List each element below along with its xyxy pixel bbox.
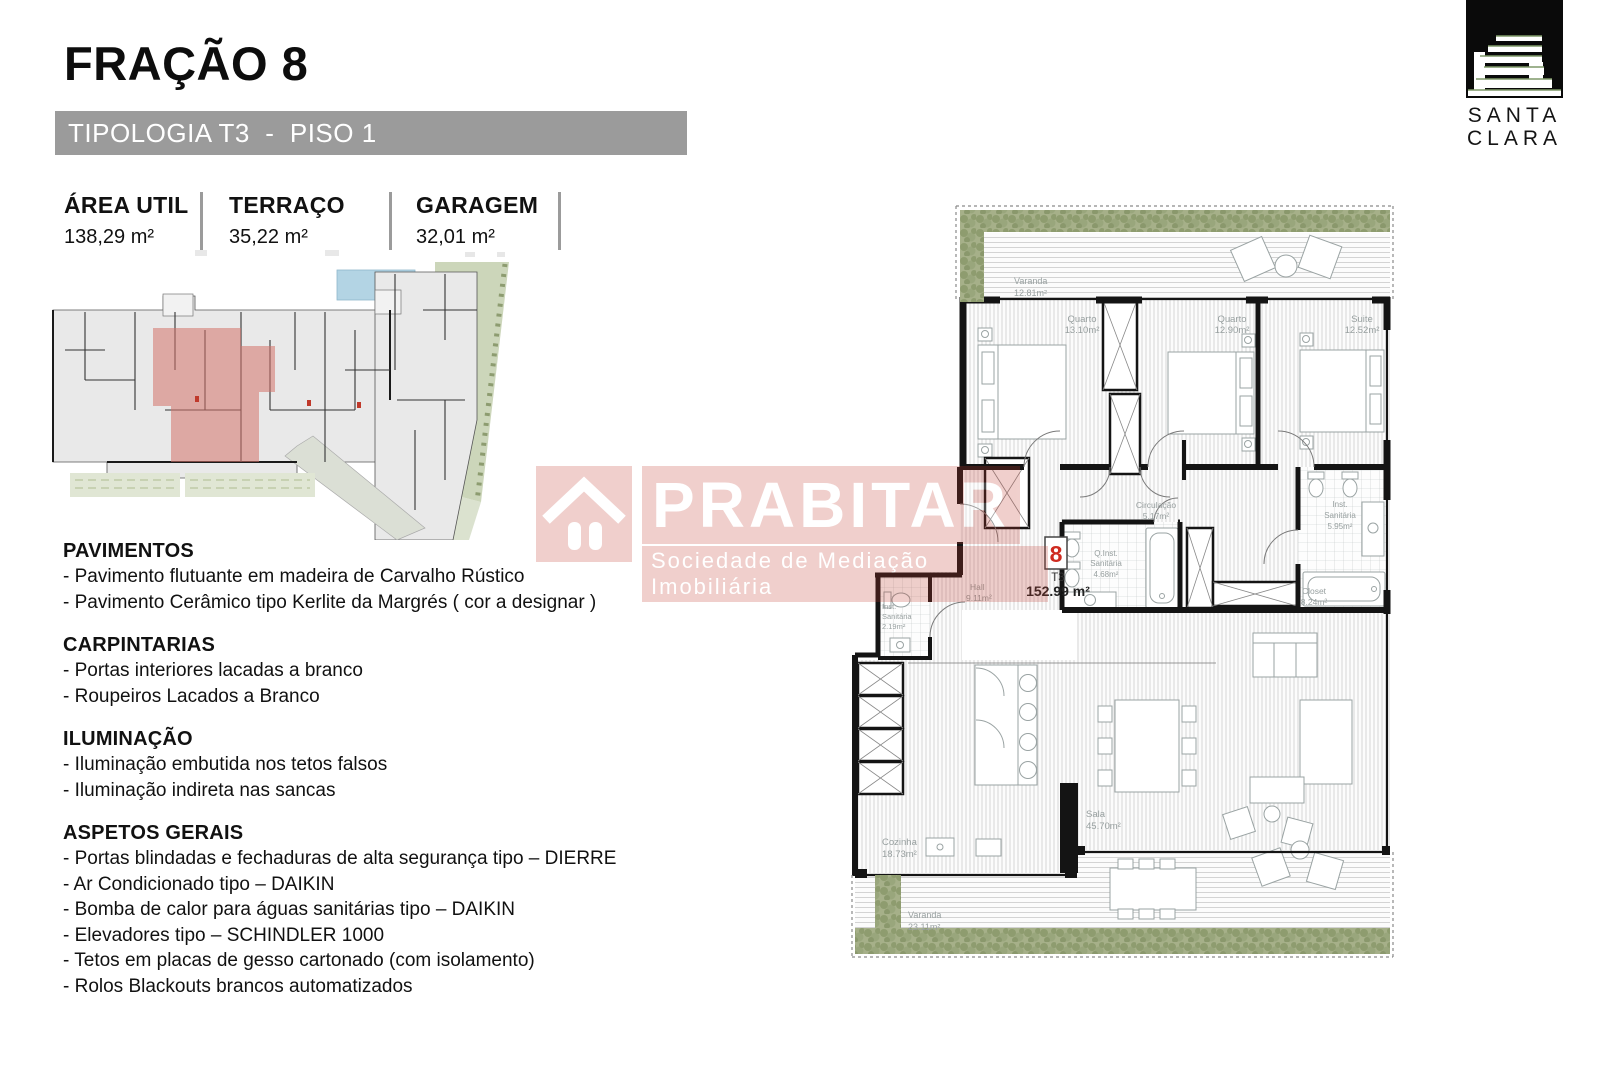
label-inst-san-serv-2: Sanitária [882, 612, 912, 621]
wall-stub [1060, 783, 1078, 873]
logo-word-clara: CLARA [1466, 127, 1563, 150]
spec-item: - Ar Condicionado tipo – DAIKIN [63, 872, 723, 898]
label-hall: Hall [970, 582, 985, 592]
sofa [1253, 633, 1317, 677]
kitchen-island [975, 665, 1037, 785]
label-cozinha-area: 18.73m² [882, 849, 917, 860]
spec-heading: ASPETOS GERAIS [63, 803, 723, 846]
site-key-plan [45, 250, 523, 545]
spec-heading: CARPINTARIAS [63, 615, 723, 658]
label-inst-san-serv-area: 2.19m² [882, 622, 906, 631]
label-cozinha: Cozinha [882, 837, 918, 848]
stat-divider [558, 192, 561, 250]
label-circulacao-area: 5.17m² [1143, 511, 1170, 521]
stat-label: ÁREA UTIL [64, 192, 200, 219]
label-quarto2-area: 12.90m² [1215, 325, 1250, 336]
label-inst-san-suite-1: Inst. [1332, 500, 1347, 509]
site-unit-highlight [153, 328, 275, 462]
label-hall-area: 9.11m² [966, 593, 992, 603]
spec-item: - Portas blindadas e fechaduras de alta … [63, 846, 723, 872]
stat-value: 35,22 m² [229, 226, 389, 249]
label-sala-area: 45.70m² [1086, 821, 1121, 832]
label-inst-san-q-2: Sanitária [1090, 559, 1122, 568]
stat-area-util: ÁREA UTIL 138,29 m² [64, 192, 200, 249]
spec-item: - Bomba de calor para águas sanitárias t… [63, 897, 723, 923]
stat-garagem: GARAGEM 32,01 m² [392, 192, 544, 249]
label-quarto2: Quarto [1217, 314, 1246, 325]
spec-item: - Elevadores tipo – SCHINDLER 1000 [63, 923, 723, 949]
bed-suite [1300, 333, 1384, 449]
santa-clara-logo: SANTA CLARA [1466, 0, 1563, 150]
spec-item: - Iluminação indireta nas sancas [63, 778, 723, 804]
site-lawn-strips [70, 473, 315, 497]
spec-item: - Pavimento Cerâmico tipo Kerlite da Mar… [63, 590, 723, 616]
coffee-table [1250, 777, 1304, 803]
label-inst-san-suite-area: 5.95m² [1328, 522, 1353, 531]
label-quarto1: Quarto [1067, 314, 1096, 325]
label-varanda-top-area: 12.81m² [1014, 288, 1047, 298]
floor-plan: Varanda 12.81m² Quarto 13.10m² Quarto 12… [848, 200, 1396, 965]
stat-label: TERRAÇO [229, 192, 389, 219]
label-varanda-bottom-area: 23.11m² [908, 922, 940, 932]
spec-item: - Iluminação embutida nos tetos falsos [63, 752, 723, 778]
label-sala: Sala [1086, 809, 1106, 820]
page-title: FRAÇÃO 8 [64, 36, 308, 91]
label-inst-san-serv-1: Inst. [882, 602, 896, 611]
stat-terraco: TERRAÇO 35,22 m² [203, 192, 389, 249]
label-varanda-bottom: Varanda [908, 910, 941, 920]
specifications: PAVIMENTOS - Pavimento flutuante em made… [63, 538, 723, 999]
bed-quarto1 [978, 328, 1066, 457]
label-suite-area: 12.52m² [1345, 325, 1380, 336]
label-quarto1-area: 13.10m² [1065, 325, 1100, 336]
tv-rug [1300, 700, 1352, 784]
label-closet: Closet [1302, 586, 1327, 596]
typology-bar: TIPOLOGIA T3 - PISO 1 [55, 111, 687, 155]
bed-quarto2 [1168, 334, 1255, 451]
brochure-page: FRAÇÃO 8 TIPOLOGIA T3 - PISO 1 ÁREA UTIL… [0, 0, 1602, 1080]
outdoor-dining [1110, 859, 1196, 919]
logo-word-santa: SANTA [1466, 104, 1563, 127]
spec-item: - Pavimento flutuante em madeira de Carv… [63, 564, 723, 590]
label-suite: Suite [1351, 314, 1373, 325]
label-inst-san-q-1: Q.Inst. [1094, 549, 1118, 558]
stat-value: 138,29 m² [64, 226, 200, 249]
site-key-plan-svg [45, 250, 523, 540]
label-closet-area: 8.24m² [1301, 597, 1328, 607]
label-inst-san-suite-2: Sanitária [1324, 511, 1356, 520]
spec-item: - Tetos em placas de gesso cartonado (co… [63, 948, 723, 974]
santa-clara-logo-icon [1466, 0, 1563, 98]
stat-label: GARAGEM [416, 192, 544, 219]
stat-value: 32,01 m² [416, 226, 544, 249]
label-varanda-top: Varanda [1014, 276, 1047, 286]
label-circulacao: Circulação [1136, 500, 1176, 510]
label-inst-san-q-area: 4.68m² [1094, 570, 1119, 579]
spec-item: - Portas interiores lacadas a branco [63, 658, 723, 684]
spec-item: - Rolos Blackouts brancos automatizados [63, 974, 723, 1000]
area-stats: ÁREA UTIL 138,29 m² TERRAÇO 35,22 m² GAR… [64, 192, 561, 250]
unit-area: 152.99 m² [1026, 583, 1090, 599]
stepped-building-icon [1466, 0, 1563, 98]
unit-number: 8 [1050, 541, 1063, 567]
spec-item: - Roupeiros Lacados a Branco [63, 684, 723, 710]
spec-heading: ILUMINAÇÃO [63, 709, 723, 752]
floor-plan-svg: Varanda 12.81m² Quarto 13.10m² Quarto 12… [848, 200, 1396, 960]
